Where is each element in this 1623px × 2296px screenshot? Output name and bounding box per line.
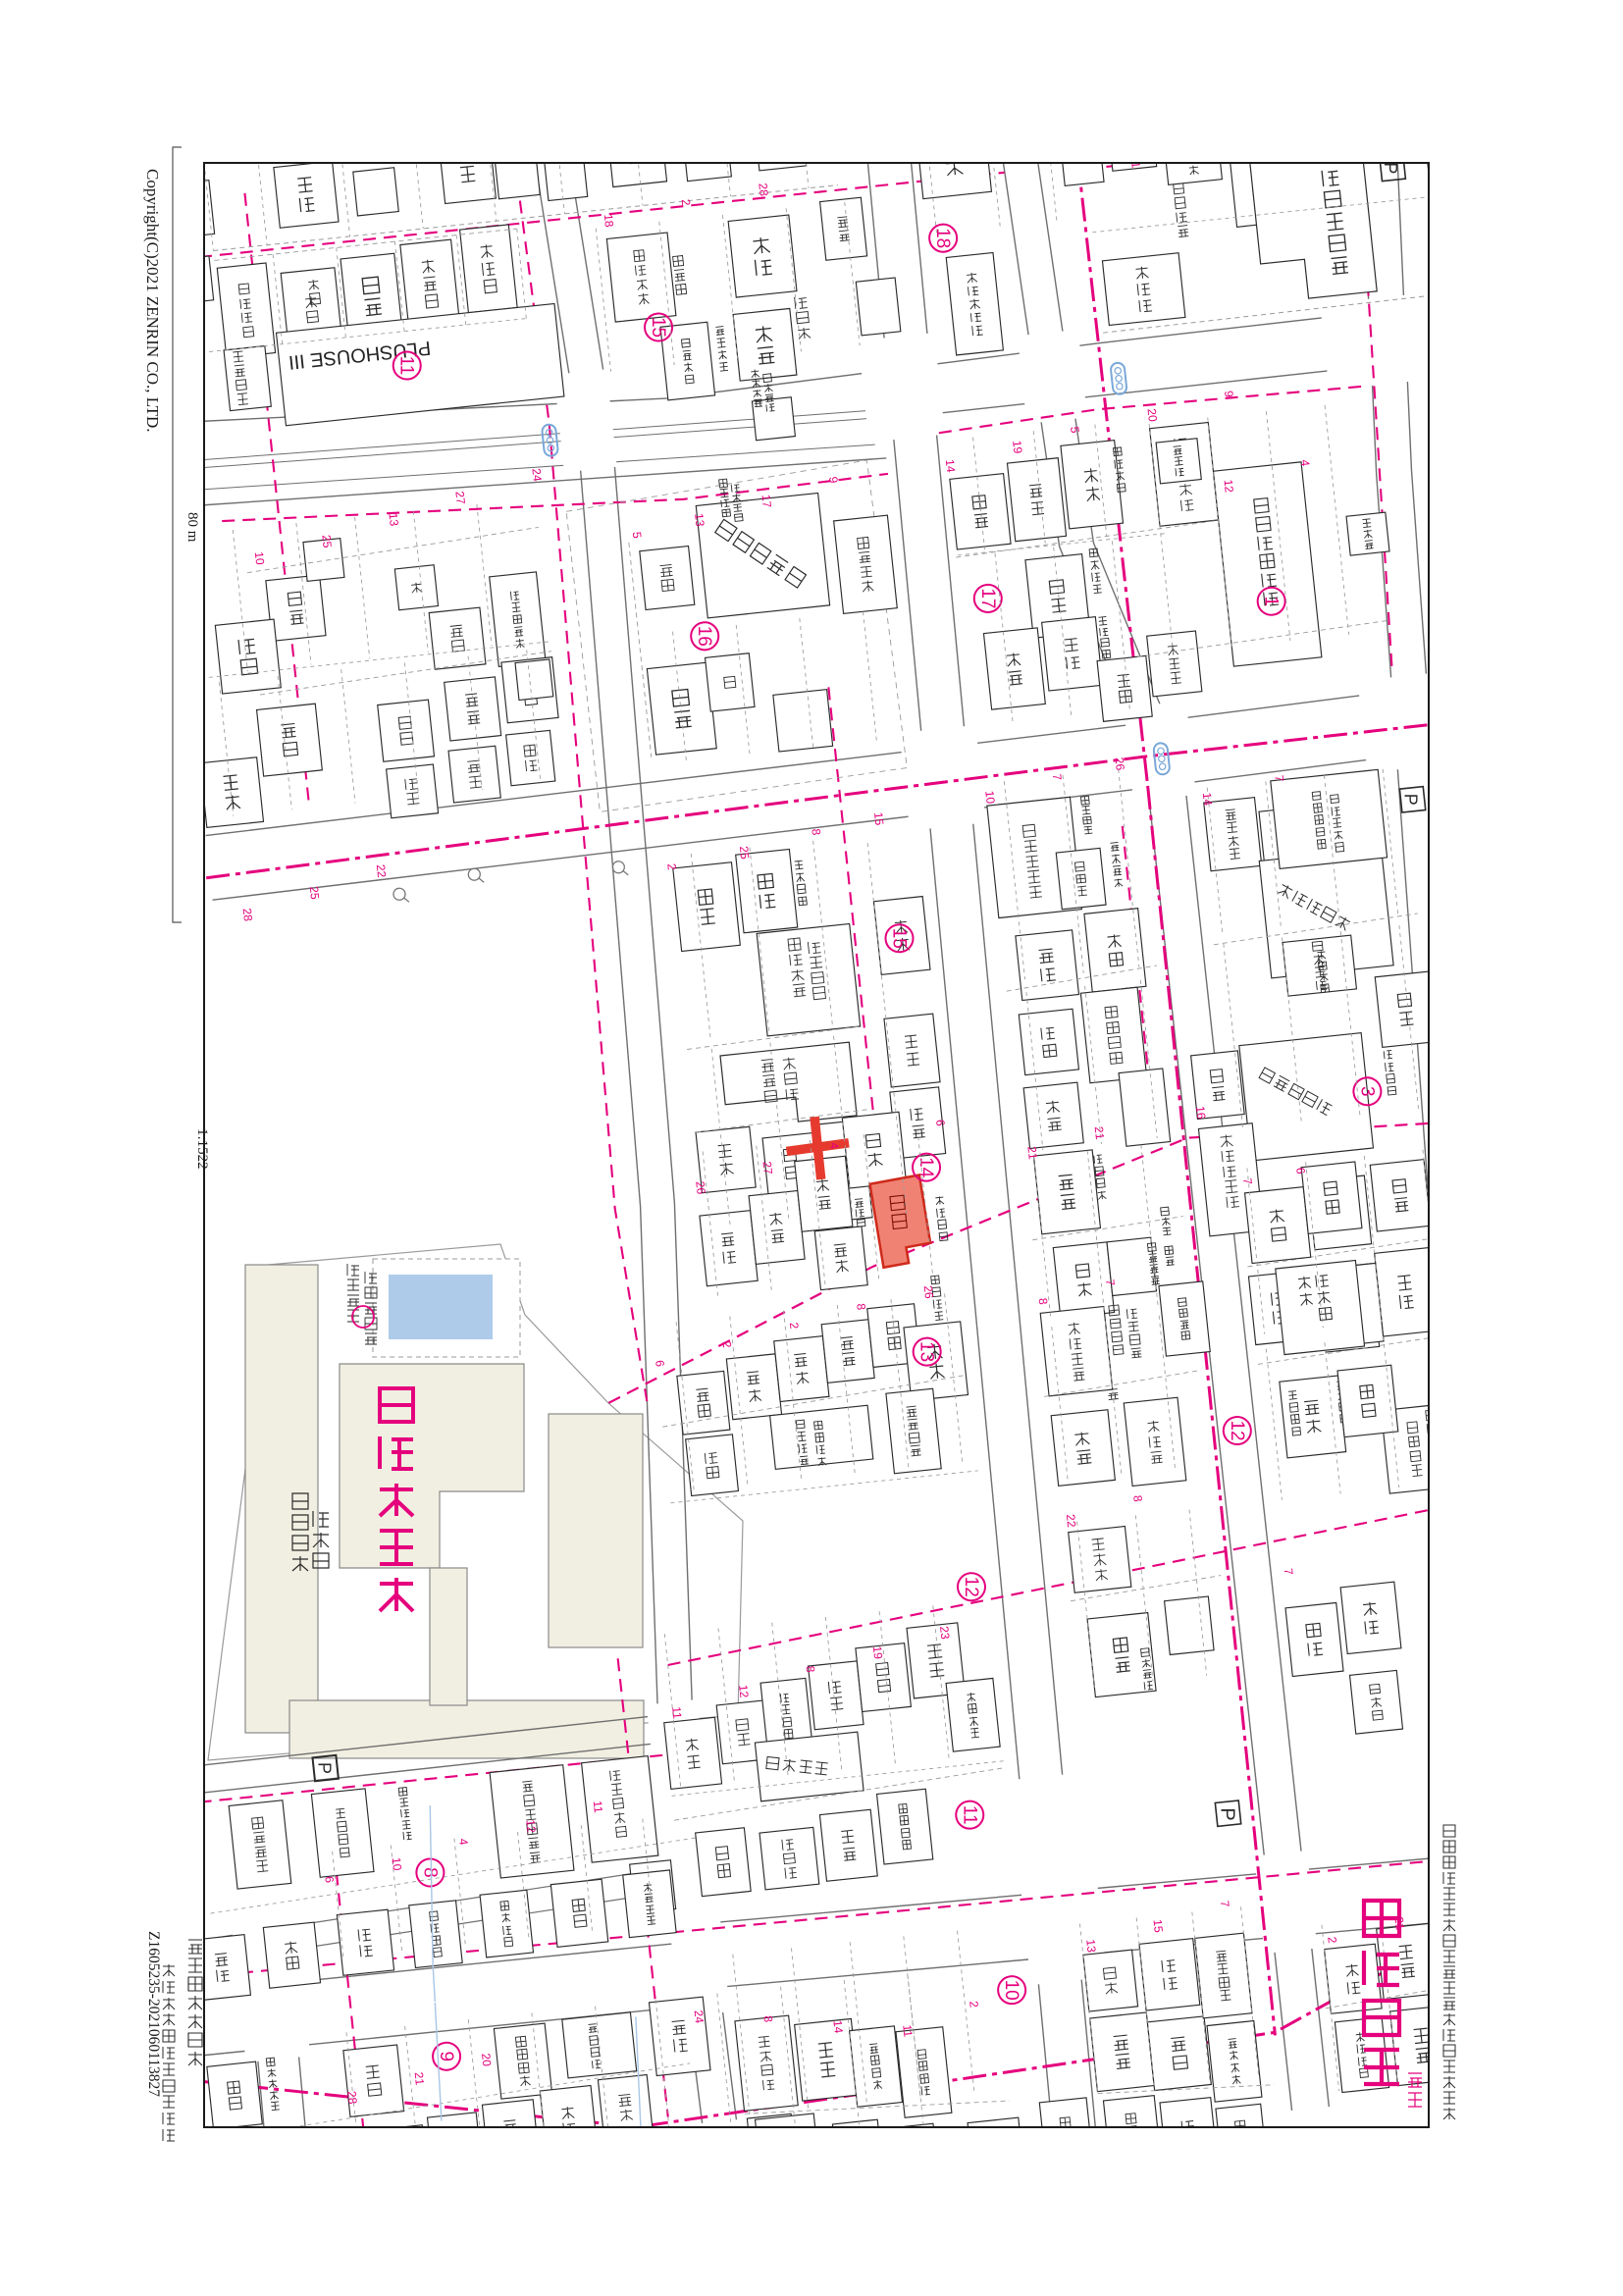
svg-text:14: 14 bbox=[943, 459, 958, 474]
svg-text:28: 28 bbox=[756, 183, 770, 197]
svg-text:26: 26 bbox=[693, 1180, 707, 1195]
svg-text:11: 11 bbox=[396, 356, 417, 376]
svg-text:1:1522: 1:1522 bbox=[194, 1128, 210, 1170]
svg-text:12: 12 bbox=[961, 1577, 981, 1597]
svg-text:18: 18 bbox=[932, 228, 953, 248]
svg-text:13: 13 bbox=[386, 512, 400, 527]
svg-text:17: 17 bbox=[977, 588, 998, 608]
svg-text:P: P bbox=[1401, 794, 1421, 806]
svg-text:17: 17 bbox=[759, 494, 774, 508]
svg-text:P: P bbox=[1381, 162, 1400, 174]
svg-text:15: 15 bbox=[871, 811, 886, 826]
svg-text:28: 28 bbox=[344, 2090, 359, 2105]
svg-text:15: 15 bbox=[888, 928, 909, 949]
svg-text:10: 10 bbox=[982, 790, 997, 805]
svg-text:20: 20 bbox=[479, 2053, 494, 2067]
svg-text:24: 24 bbox=[529, 468, 544, 483]
svg-text:19: 19 bbox=[1010, 440, 1024, 454]
svg-text:P: P bbox=[1217, 1807, 1238, 1820]
svg-text:18: 18 bbox=[602, 214, 616, 229]
svg-text:28: 28 bbox=[240, 908, 255, 922]
svg-text:24: 24 bbox=[692, 2009, 707, 2024]
svg-text:10: 10 bbox=[390, 1856, 404, 1871]
svg-text:14: 14 bbox=[916, 1157, 936, 1178]
svg-text:25: 25 bbox=[319, 534, 334, 548]
svg-text:12: 12 bbox=[736, 1684, 751, 1698]
svg-text:16: 16 bbox=[1193, 1105, 1208, 1120]
svg-text:10: 10 bbox=[1001, 1980, 1021, 2001]
svg-text:26: 26 bbox=[1112, 757, 1126, 771]
svg-text:21: 21 bbox=[412, 2071, 427, 2086]
svg-text:10: 10 bbox=[252, 551, 267, 566]
svg-text:13: 13 bbox=[692, 513, 707, 528]
svg-text:20: 20 bbox=[1145, 408, 1160, 423]
svg-text:11: 11 bbox=[669, 1706, 684, 1720]
svg-text:25: 25 bbox=[737, 846, 752, 861]
svg-text:13: 13 bbox=[1083, 1939, 1098, 1954]
svg-text:27: 27 bbox=[452, 491, 467, 505]
svg-text:21: 21 bbox=[1024, 1146, 1039, 1161]
svg-text:15: 15 bbox=[648, 317, 668, 338]
svg-text:23: 23 bbox=[937, 1626, 952, 1641]
svg-text:P: P bbox=[315, 1762, 335, 1774]
svg-text:15: 15 bbox=[1150, 1919, 1165, 1934]
svg-text:12: 12 bbox=[1227, 1420, 1247, 1440]
svg-text:14: 14 bbox=[830, 2019, 845, 2034]
svg-text:22: 22 bbox=[1064, 1514, 1078, 1529]
svg-text:11: 11 bbox=[591, 1800, 605, 1814]
svg-text:Z1605235-2021060113827: Z1605235-2021060113827 bbox=[145, 1931, 162, 2097]
svg-text:22: 22 bbox=[374, 863, 389, 878]
svg-text:3: 3 bbox=[1356, 1086, 1377, 1097]
svg-text:12: 12 bbox=[523, 1819, 538, 1834]
svg-text:11: 11 bbox=[900, 2024, 915, 2038]
svg-text:14: 14 bbox=[1200, 792, 1215, 807]
svg-text:8: 8 bbox=[419, 1867, 440, 1878]
svg-text:19: 19 bbox=[870, 1645, 885, 1660]
svg-text:26: 26 bbox=[921, 1284, 936, 1299]
svg-text:25: 25 bbox=[307, 886, 322, 901]
svg-text:Copyright(C)2021 ZENRIN CO., L: Copyright(C)2021 ZENRIN CO., LTD. bbox=[143, 169, 162, 433]
svg-text:11: 11 bbox=[959, 1805, 979, 1825]
svg-text:27: 27 bbox=[760, 1161, 775, 1175]
svg-text:13: 13 bbox=[916, 1341, 937, 1362]
svg-text:12: 12 bbox=[1221, 479, 1235, 494]
svg-text:80 m: 80 m bbox=[184, 512, 200, 543]
svg-text:16: 16 bbox=[694, 626, 714, 647]
svg-text:1: 1 bbox=[1261, 596, 1282, 606]
svg-text:21: 21 bbox=[1092, 1125, 1107, 1140]
